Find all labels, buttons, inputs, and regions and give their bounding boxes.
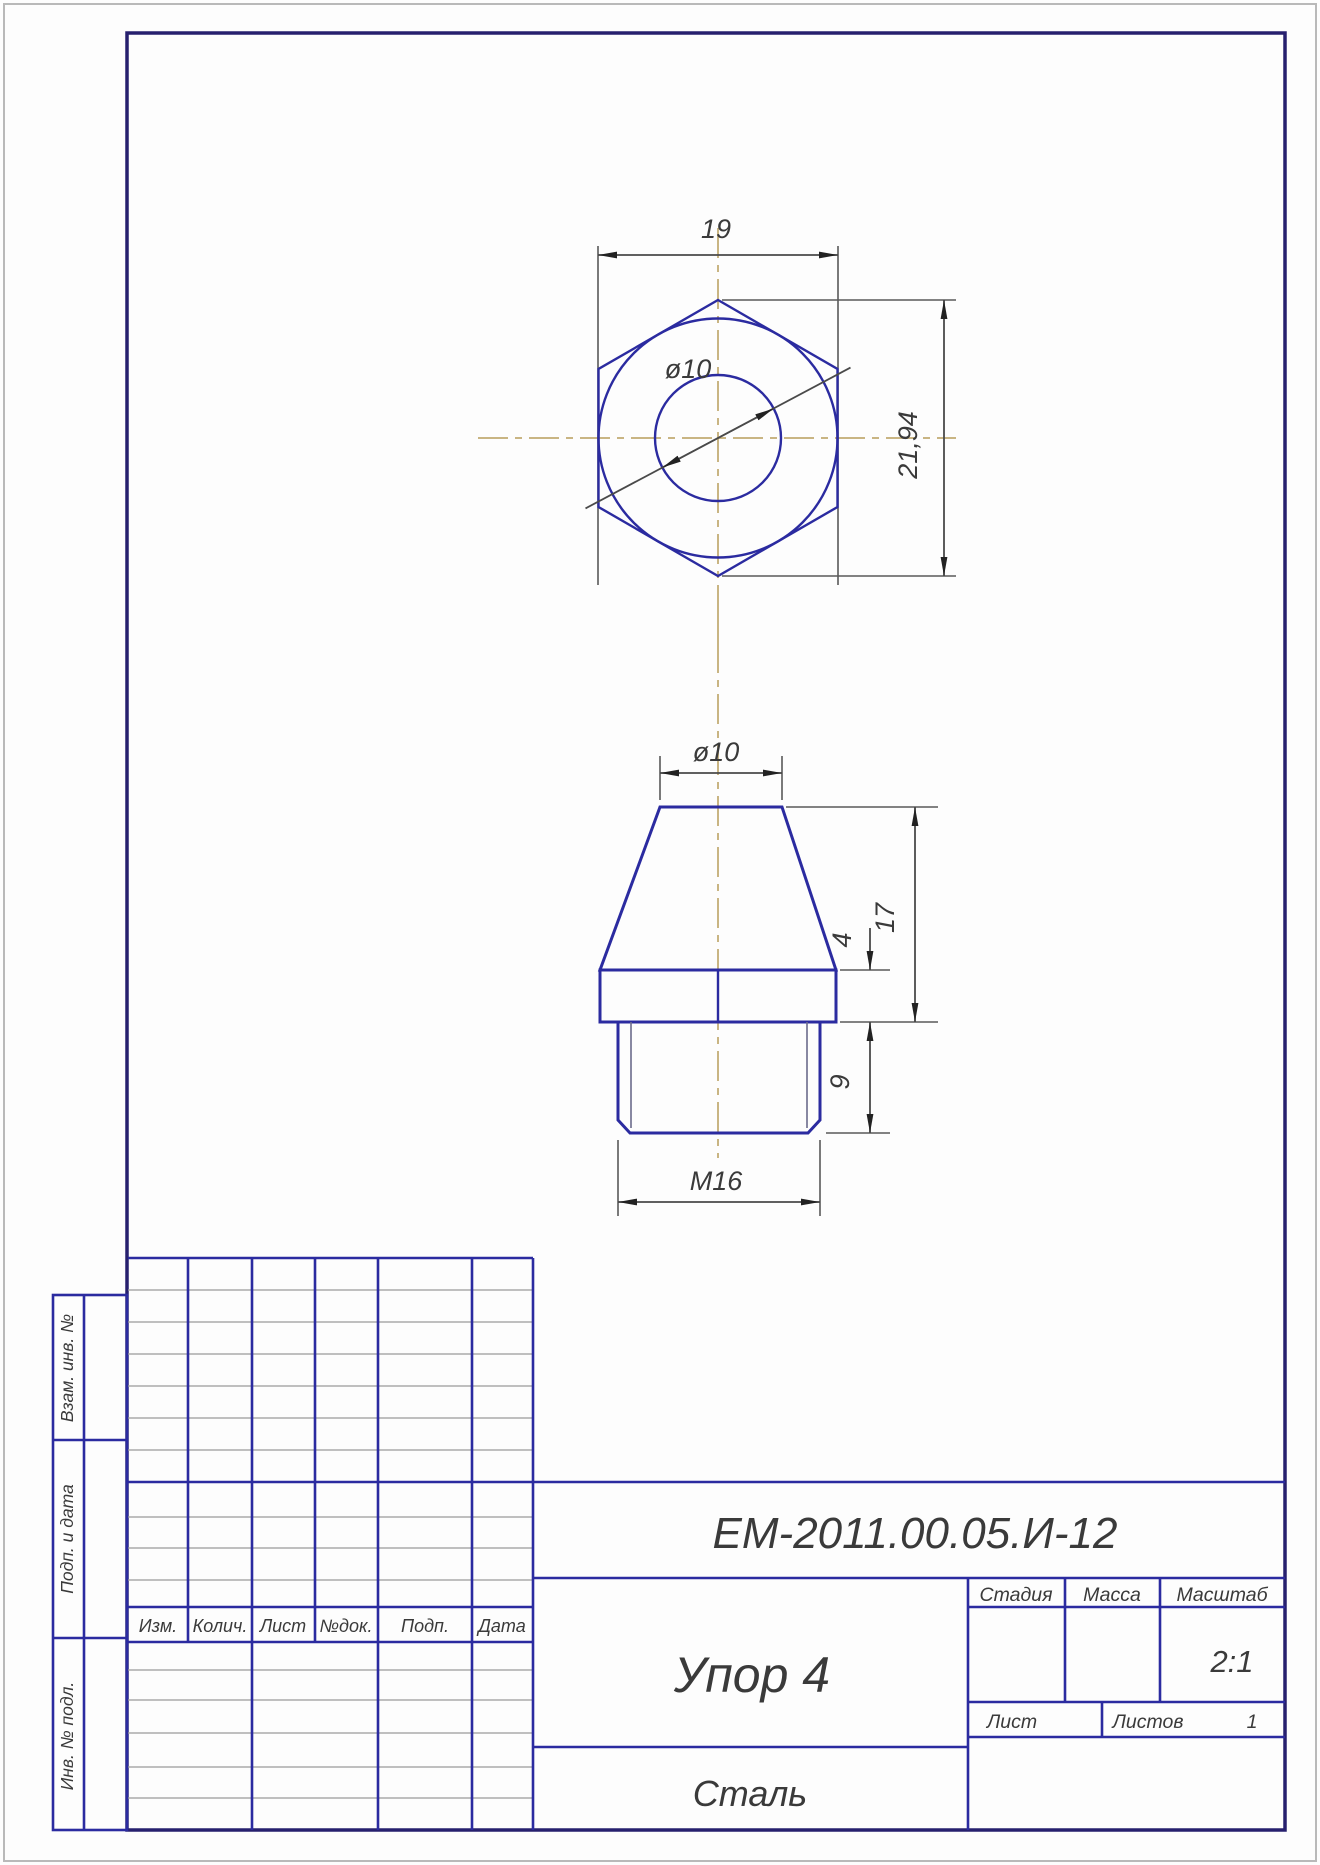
dim-label-height: 17 [870, 902, 900, 933]
dim-label-flange: 4 [827, 932, 857, 947]
dim-label-width: 19 [701, 214, 731, 244]
drawing-canvas: 19 21,94 ø10 ø10 4 9 [0, 0, 1320, 1865]
rev-header-data: Дата [476, 1616, 526, 1636]
part-name: Упор 4 [673, 1647, 830, 1703]
sheets-count: 1 [1247, 1711, 1258, 1733]
dim-label-thread-len: 9 [825, 1074, 855, 1089]
doc-number: ЕМ-2011.00.05.И-12 [713, 1509, 1118, 1558]
scale-value: 2:1 [1209, 1644, 1253, 1679]
sheets-label: Листов [1110, 1711, 1183, 1733]
dim-label-hole: ø10 [665, 354, 712, 384]
rev-header-list: Лист [259, 1616, 306, 1636]
page-border [4, 4, 1316, 1861]
scale-header: Масштаб [1176, 1584, 1268, 1606]
stamp-inventory-label: Инв. № подл. [57, 1682, 77, 1791]
dim-label-thread: M16 [690, 1166, 744, 1196]
stamp-reuse-label: Взам. инв. № [57, 1314, 77, 1422]
rev-header-podp: Подп. [401, 1616, 449, 1636]
stamp-sign-date-label: Подп. и дата [57, 1484, 77, 1594]
rev-header-dok: №док. [320, 1616, 373, 1636]
drawing-sheet: 19 21,94 ø10 ø10 4 9 [0, 0, 1320, 1865]
sheet-label: Лист [985, 1711, 1037, 1733]
mass-header: Масса [1083, 1584, 1141, 1606]
stage-header: Стадия [980, 1584, 1054, 1606]
material: Сталь [693, 1773, 807, 1814]
dim-label-corner: 21,94 [893, 411, 923, 480]
dim-label-top-dia: ø10 [693, 737, 740, 767]
rev-header-izm: Изм. [139, 1616, 177, 1636]
rev-header-kolich: Колич. [193, 1616, 248, 1636]
